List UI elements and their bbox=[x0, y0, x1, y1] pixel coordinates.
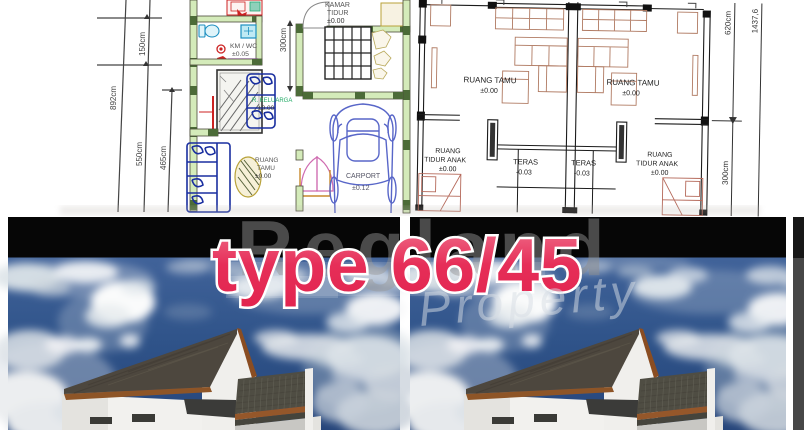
svg-text:892cm: 892cm bbox=[109, 86, 118, 110]
svg-text:TERAS: TERAS bbox=[513, 157, 538, 166]
svg-text:150cm: 150cm bbox=[138, 32, 147, 56]
svg-text:1437,6: 1437,6 bbox=[750, 8, 759, 33]
svg-text:±0.00: ±0.00 bbox=[651, 170, 669, 177]
svg-text:±0.00: ±0.00 bbox=[258, 105, 275, 112]
svg-text:RUANG: RUANG bbox=[255, 157, 278, 164]
svg-text:±0.00: ±0.00 bbox=[622, 90, 640, 97]
svg-text:RUANG: RUANG bbox=[435, 148, 460, 155]
svg-text:±0.00: ±0.00 bbox=[439, 166, 457, 173]
svg-text:TERAS: TERAS bbox=[571, 158, 596, 167]
svg-text:±0.00: ±0.00 bbox=[327, 18, 345, 25]
svg-text:TAMU: TAMU bbox=[257, 165, 275, 172]
svg-text:RUANG: RUANG bbox=[647, 152, 672, 159]
svg-text:465cm: 465cm bbox=[159, 146, 168, 170]
svg-text:TIDUR ANAK: TIDUR ANAK bbox=[424, 157, 466, 165]
svg-text:CARPORT: CARPORT bbox=[346, 173, 381, 180]
svg-text:RUANG TAMU: RUANG TAMU bbox=[463, 75, 516, 85]
svg-text:TIDUR: TIDUR bbox=[327, 10, 348, 17]
svg-text:-0.03: -0.03 bbox=[574, 170, 590, 177]
svg-text:KAMAR: KAMAR bbox=[325, 2, 350, 9]
svg-text:300cm: 300cm bbox=[279, 28, 288, 52]
svg-text:±0.12: ±0.12 bbox=[352, 185, 370, 192]
svg-text:RUANG TAMU: RUANG TAMU bbox=[606, 78, 659, 88]
svg-text:620cm: 620cm bbox=[723, 10, 732, 35]
svg-text:TIDUR ANAK: TIDUR ANAK bbox=[636, 160, 678, 168]
svg-text:550cm: 550cm bbox=[135, 142, 144, 166]
svg-text:KM / WC: KM / WC bbox=[230, 43, 257, 50]
svg-text:±0.00: ±0.00 bbox=[255, 173, 272, 180]
svg-text:±0.05: ±0.05 bbox=[232, 51, 249, 58]
svg-text:-0.03: -0.03 bbox=[516, 169, 532, 176]
svg-text:±0.00: ±0.00 bbox=[480, 88, 498, 95]
svg-text:300cm: 300cm bbox=[721, 160, 730, 185]
svg-text:R. KELUARGA: R. KELUARGA bbox=[252, 98, 292, 104]
